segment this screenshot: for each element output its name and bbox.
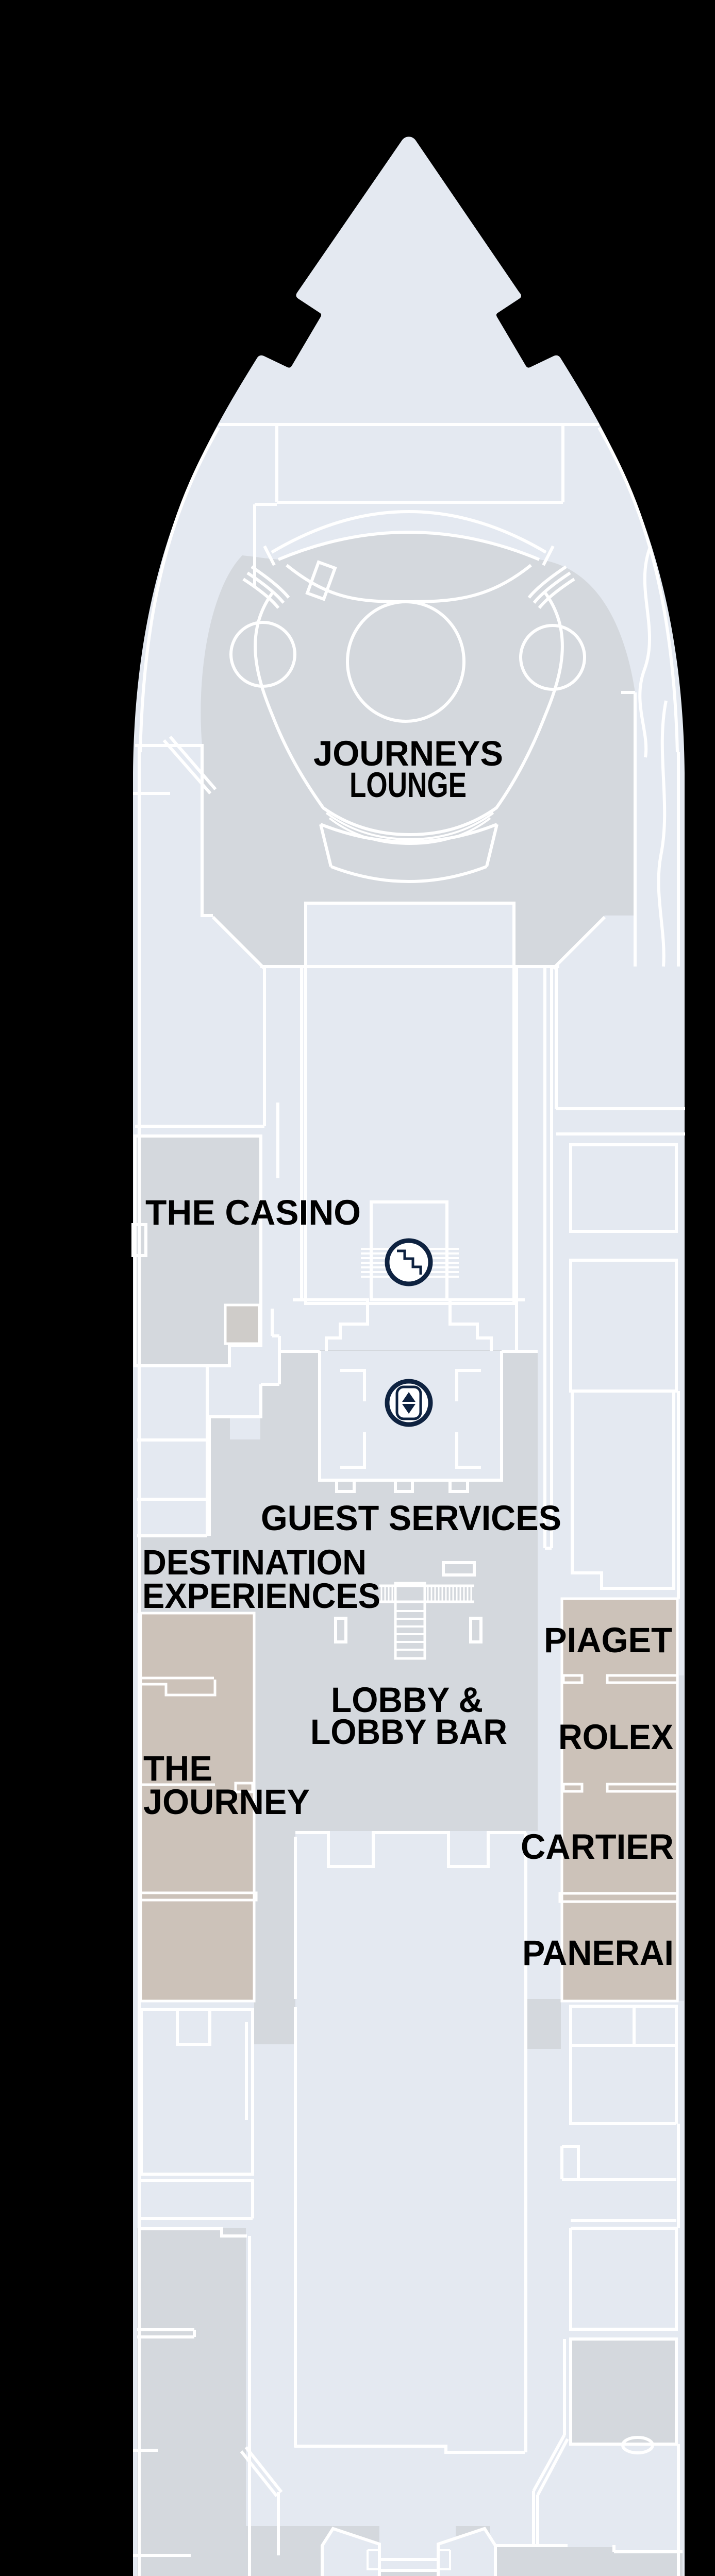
svg-text:THE CASINO: THE CASINO [145, 1193, 361, 1232]
svg-text:PANERAI: PANERAI [522, 1933, 674, 1973]
svg-text:JOURNEY: JOURNEY [143, 1782, 310, 1822]
svg-text:LOBBY BAR: LOBBY BAR [310, 1712, 507, 1752]
svg-text:CARTIER: CARTIER [521, 1827, 674, 1867]
svg-text:GUEST SERVICES: GUEST SERVICES [261, 1498, 561, 1538]
svg-text:LOUNGE: LOUNGE [350, 765, 467, 805]
svg-text:EXPERIENCES: EXPERIENCES [142, 1576, 380, 1616]
svg-text:ROLEX: ROLEX [558, 1717, 673, 1757]
svg-text:PIAGET: PIAGET [544, 1620, 672, 1660]
